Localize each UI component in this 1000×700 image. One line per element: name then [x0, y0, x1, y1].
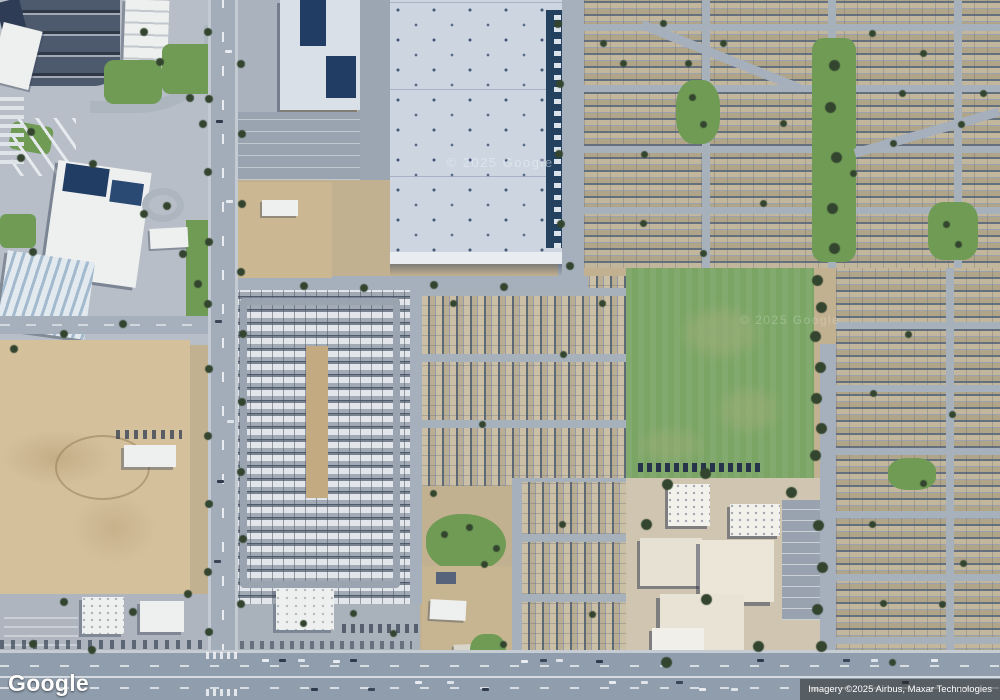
satellite-map-canvas[interactable]: © 2025 Google © 2025 Google Google Image… — [0, 0, 1000, 700]
school-building — [640, 538, 702, 586]
small-building — [262, 200, 298, 216]
tree-cluster-small — [0, 0, 7, 7]
residential-block-center-south — [522, 478, 630, 654]
school-campus — [626, 478, 828, 654]
google-watermark: © 2025 Google — [740, 313, 840, 327]
school-building — [700, 540, 774, 602]
imagery-attribution: Imagery ©2025 Airbus, Maxar Technologies — [800, 679, 1000, 700]
neighborhood-park — [426, 514, 506, 572]
small-building — [150, 227, 189, 249]
greenbelt — [888, 458, 936, 490]
navy-roof-section — [109, 180, 144, 206]
navy-roof-section — [300, 0, 326, 46]
parked-car-row — [240, 641, 412, 649]
school-side-road — [820, 344, 836, 700]
greenbelt — [676, 80, 720, 144]
lawn-patch — [162, 44, 214, 94]
small-warehouse — [280, 0, 360, 110]
school-building — [652, 628, 704, 652]
loading-dock — [546, 10, 562, 248]
neighborhood-street — [410, 284, 422, 604]
lawn-patch — [0, 214, 36, 248]
neighborhood-street — [512, 478, 522, 652]
commercial-building — [140, 601, 184, 632]
white-building — [124, 445, 176, 467]
roundabout-driveway — [142, 188, 184, 222]
lawn-patch — [104, 60, 162, 104]
greenbelt — [812, 38, 856, 262]
commercial-building — [276, 588, 334, 630]
lane-divider — [222, 0, 224, 654]
fenced-dirt-yard — [238, 182, 332, 278]
warehouse-shadow — [390, 264, 562, 276]
navy-roof-section — [326, 56, 356, 98]
parked-car-row — [116, 430, 182, 439]
side-street-west — [0, 316, 214, 334]
crosswalk — [206, 689, 240, 696]
truck-trailer-rows — [0, 92, 24, 164]
shed — [436, 572, 456, 584]
warehouse-pavement — [238, 0, 280, 112]
warehouse-drive-aisle — [358, 0, 392, 180]
google-logo[interactable]: Google — [8, 670, 89, 697]
crosswalk — [206, 652, 240, 659]
greenbelt — [928, 202, 978, 260]
dry-grass-patch — [641, 430, 701, 460]
school-parking-lot — [782, 500, 824, 620]
parked-car-row — [0, 640, 212, 649]
google-watermark: © 2025 Google — [440, 155, 560, 170]
street-south-of-warehouse — [228, 276, 588, 290]
dry-grass-patch — [721, 390, 776, 430]
parked-car-row — [638, 463, 760, 472]
grass-field — [626, 260, 814, 480]
warehouse-parking — [238, 112, 360, 180]
school-building — [730, 504, 780, 536]
residential-block-center — [422, 276, 630, 486]
dirt-strip — [306, 346, 328, 498]
navy-roof-section — [62, 163, 109, 197]
warehouse-parapet — [390, 252, 562, 264]
house — [430, 599, 467, 621]
warehouse-roof — [390, 0, 562, 264]
school-building — [668, 484, 710, 526]
commercial-building — [82, 597, 124, 634]
